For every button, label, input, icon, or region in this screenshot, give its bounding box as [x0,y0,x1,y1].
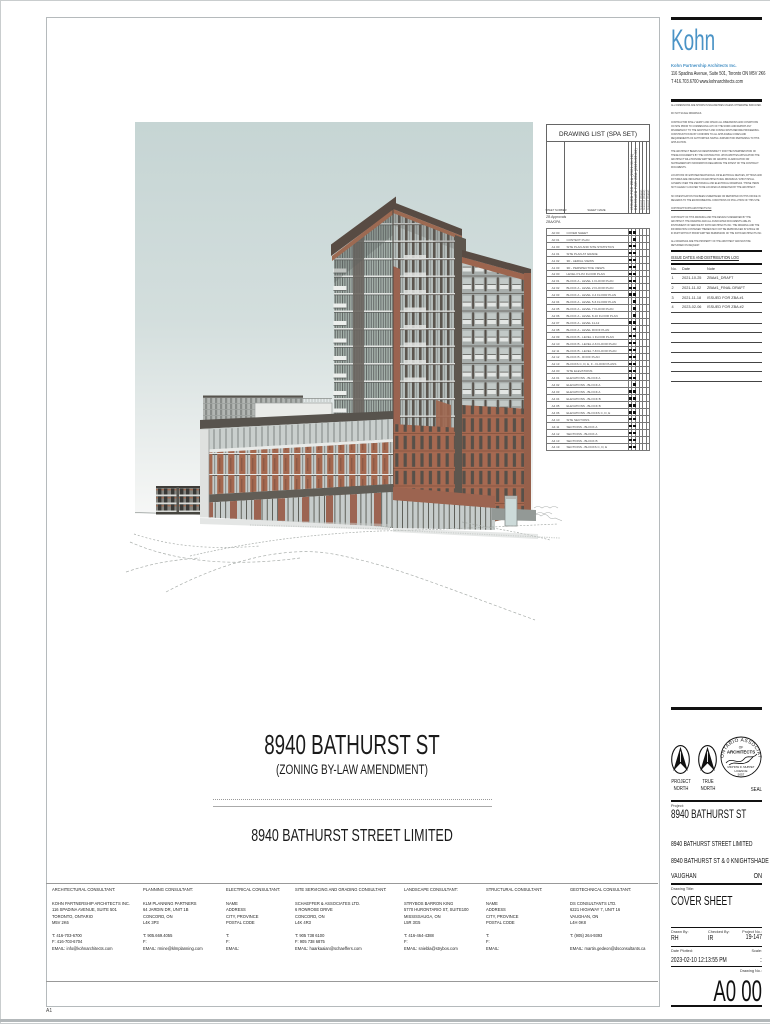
svg-text:ARCHITECTS: ARCHITECTS [727,750,755,755]
svg-text:5057: 5057 [738,773,745,777]
